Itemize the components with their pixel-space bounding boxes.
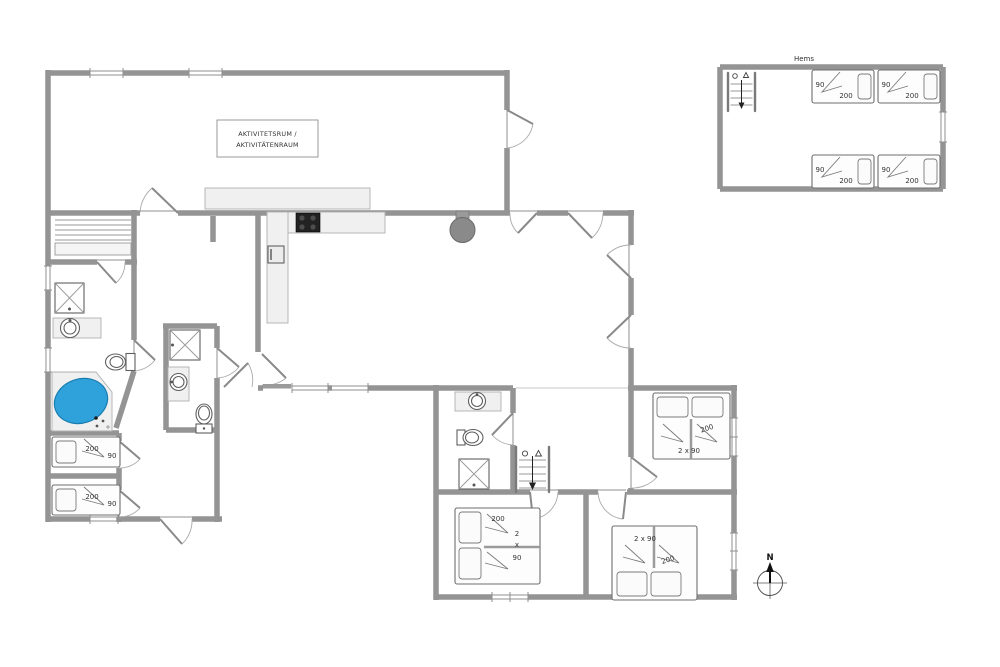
bed-width-label: 90	[882, 81, 891, 89]
stairs-symbol-circle	[522, 451, 527, 456]
bed-width-label: 90	[108, 452, 117, 460]
bed-length-label: 200	[905, 177, 918, 185]
sink-icon	[455, 392, 501, 411]
hems-label: Hems	[794, 55, 814, 63]
terrace-door-leaf	[263, 384, 291, 389]
activity-room-label: AKTIVITETSRUM / AKTIVITÄTENRAUM	[217, 120, 318, 157]
activity-room-label-line1: AKTIVITETSRUM /	[238, 130, 297, 138]
sauna-benches	[55, 215, 131, 255]
bed-width-label: x	[515, 541, 519, 549]
bed-single-hems-3: 90 200	[812, 155, 874, 188]
bed-single-hems-2: 90 200	[878, 70, 940, 103]
bathroom-2	[168, 330, 212, 433]
sink-icon	[53, 318, 101, 338]
staircase-hems	[728, 73, 755, 112]
stove-icon	[296, 213, 320, 232]
bed-width-label: 90	[108, 500, 117, 508]
bed-width-label: 2	[515, 530, 519, 538]
shower-icon	[459, 459, 489, 489]
bed-double-s: 2 x 90 200	[612, 526, 697, 600]
stairs-down-arrow	[529, 483, 536, 491]
bed-single-hems-4: 90 200	[878, 155, 940, 188]
bed-length-label: 200	[839, 92, 852, 100]
bed-single-hems-1: 90 200	[812, 70, 874, 103]
bed-width-label: 2 x 90	[634, 535, 656, 543]
kitchen-area	[205, 188, 475, 323]
floor-plan-page: AKTIVITETSRUM / AKTIVITÄTENRAUM	[0, 0, 1000, 667]
bed-single-left-1: 200 90	[52, 437, 120, 467]
hems-annex: Hems 90 200 90 200 90 20	[728, 55, 940, 188]
kitchen-bench	[205, 188, 370, 209]
bed-width-label: 90	[816, 81, 825, 89]
sink-icon	[168, 367, 189, 401]
bed-single-left-2: 200 90	[52, 485, 120, 515]
bed-width-label: 90	[513, 554, 522, 562]
compass: N	[753, 553, 787, 599]
kitchen-counter-vertical	[267, 212, 288, 323]
shower-icon	[55, 283, 84, 313]
toilet-icon	[196, 404, 212, 433]
toilet-icon	[457, 430, 483, 446]
bed-length-label: 200	[905, 92, 918, 100]
bed-length-label: 200	[85, 493, 98, 501]
bed-length-label: 200	[839, 177, 852, 185]
floor-plan-svg: AKTIVITETSRUM / AKTIVITÄTENRAUM	[0, 0, 1000, 667]
toilet-icon	[106, 354, 136, 371]
bathroom-3	[455, 392, 501, 489]
bed-length-label: 200	[85, 445, 98, 453]
staircase-main	[516, 447, 549, 492]
north-label: N	[766, 553, 773, 563]
bed-double-e: 200 2 x 90	[653, 393, 730, 459]
activity-room-label-box	[217, 120, 318, 157]
bed-double-sw: 200 2 x 90	[455, 508, 540, 584]
bathtub	[49, 372, 114, 431]
stairs-symbol-triangle	[536, 451, 542, 457]
bed-width-label: 90	[816, 166, 825, 174]
compass-north-arrow	[766, 562, 774, 572]
bed-width-label: 90	[882, 166, 891, 174]
shower-icon	[170, 330, 200, 360]
bed-length-label: 200	[491, 515, 504, 523]
activity-room-label-line2: AKTIVITÄTENRAUM	[236, 140, 299, 149]
dishwasher-icon	[268, 246, 284, 263]
bed-width-label: 2 x 90	[678, 447, 700, 455]
